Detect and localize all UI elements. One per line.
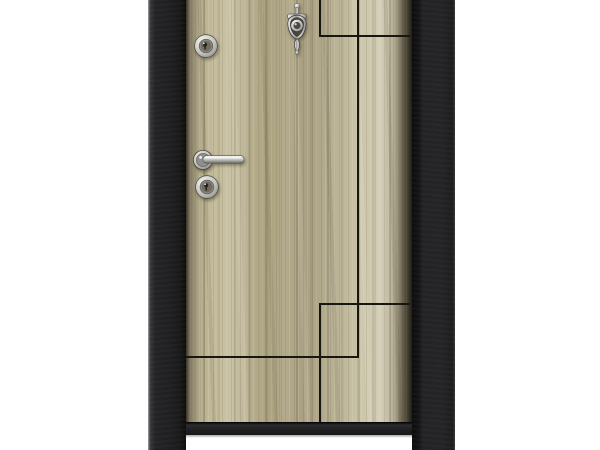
door-frame-left-jamb <box>148 0 186 450</box>
product-photo-steel-door <box>0 0 600 450</box>
door-leaf-wood-panel <box>186 0 412 422</box>
cylinder-lock-top-icon <box>193 33 219 59</box>
panel-groove-horizontal-middle <box>319 303 410 305</box>
panel-groove-horizontal-bottom <box>186 356 358 358</box>
floor-shadow <box>186 435 412 438</box>
door-frame-right-jamb <box>412 0 455 450</box>
panel-groove-vertical-top-left <box>319 0 321 36</box>
panel-groove-vertical-bottom <box>319 303 321 422</box>
lever-handle-icon <box>192 148 246 172</box>
panel-groove-horizontal-top <box>319 35 410 37</box>
door-knocker-icon <box>281 2 313 55</box>
door-bottom-rail <box>186 422 412 435</box>
cylinder-lock-bottom-icon <box>194 174 220 200</box>
